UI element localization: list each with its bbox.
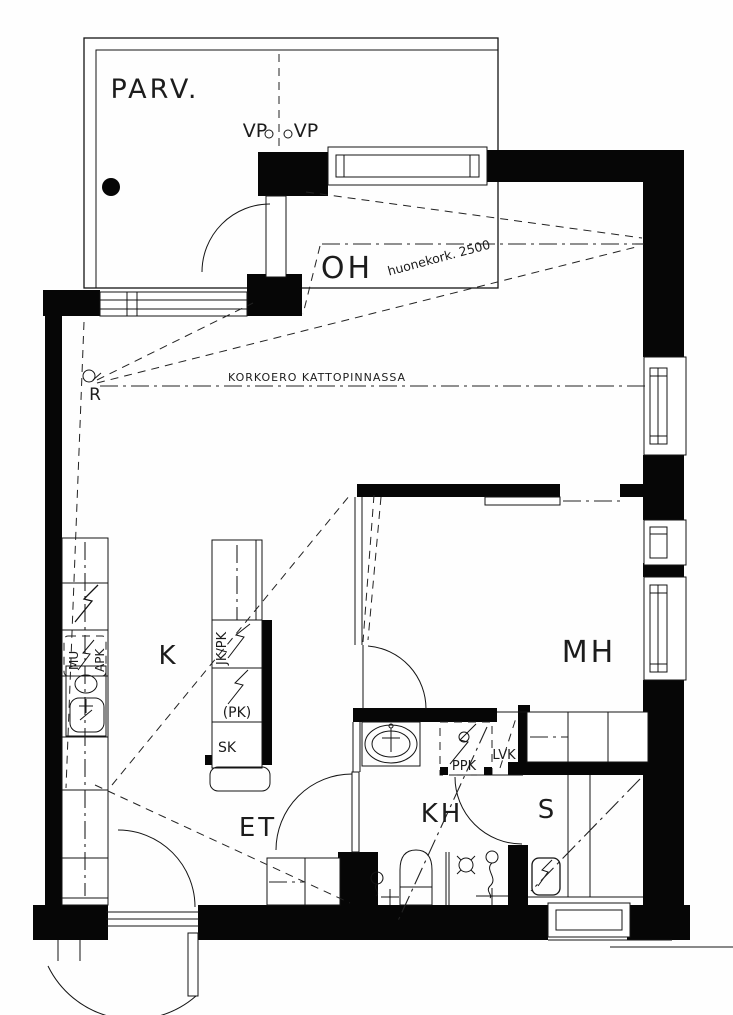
label-dishwasher-reserved: (PK): [223, 705, 252, 721]
floor-plan-canvas: PARV. VP VP OH huonekork. 2500 KORKOERO …: [0, 0, 733, 1015]
bedroom-window-1: [644, 357, 686, 455]
label-r-marker: R: [89, 385, 101, 405]
shower-partition: [446, 852, 449, 905]
room-label-balcony: PARV.: [111, 74, 200, 105]
room-label-living: OH: [321, 251, 373, 286]
washbasin: [362, 722, 420, 766]
room-label-hallway: ET: [239, 813, 277, 843]
r-marker-symbol: [83, 370, 101, 382]
room-label-bathroom: KH: [421, 799, 464, 829]
sauna-fixtures: [528, 775, 643, 897]
bedroom-door: [485, 497, 620, 505]
floor-plan-page: PARV. VP VP OH huonekork. 2500 KORKOERO …: [0, 0, 733, 1015]
label-cleaning-cabinet: SK: [218, 740, 237, 756]
room-label-kitchen: K: [158, 641, 176, 671]
bedroom-closets: [527, 712, 648, 762]
room-label-sauna: S: [538, 795, 555, 825]
label-ceiling-note: KORKOERO KATTOPINNASSA: [228, 371, 406, 384]
room-label-bedroom: MH: [562, 635, 616, 670]
label-water-heater: LVK: [492, 748, 516, 763]
bathroom-door: [276, 772, 359, 852]
sauna-heater: [532, 858, 560, 895]
balcony-door: [202, 196, 286, 277]
label-vp-left: VP: [243, 120, 267, 142]
label-dishwasher: APK: [93, 648, 107, 672]
bedroom-window-3: [644, 577, 686, 680]
shower-valve: [457, 856, 475, 874]
label-vp-right: VP: [294, 120, 318, 142]
shower-hose: [476, 851, 508, 905]
kitchen-window: [100, 292, 247, 316]
bedroom-hall-door: [363, 645, 426, 709]
label-washer-reserved: PPK: [452, 759, 477, 774]
balcony-drain: [102, 178, 120, 196]
living-room-window: [328, 147, 487, 185]
label-fridge: JK/PK: [215, 631, 230, 666]
bedroom-window-2: [644, 520, 686, 565]
label-roomheight-note: huonekork. 2500: [386, 237, 492, 279]
toilet: [400, 850, 432, 905]
label-oven: MU: [67, 651, 81, 670]
sauna-door: [455, 775, 523, 844]
